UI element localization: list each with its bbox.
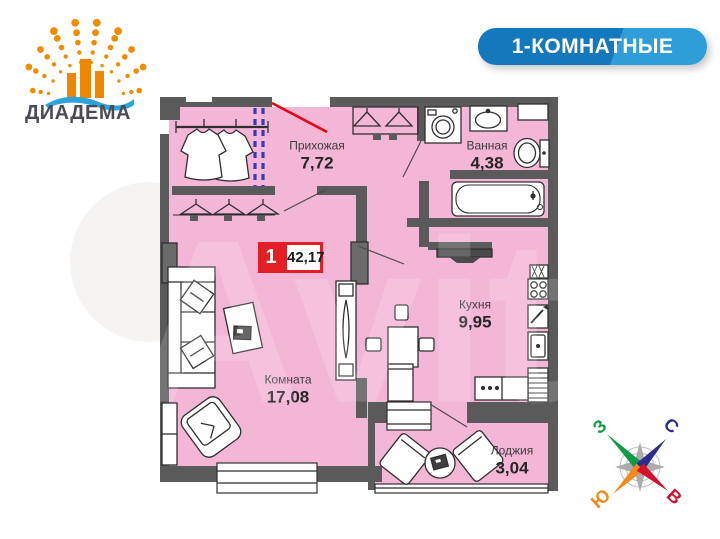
loggia-table-icon bbox=[425, 448, 455, 478]
room-window-icon bbox=[217, 463, 317, 493]
bath-sink-icon bbox=[470, 106, 507, 131]
total-area-chip: 42,17 bbox=[284, 242, 323, 273]
toilet-icon bbox=[514, 139, 549, 168]
kitchen-sink-icon bbox=[528, 332, 548, 360]
rooms-count-chip: 1 bbox=[258, 242, 284, 273]
loggia-glazing-icon bbox=[375, 484, 548, 493]
cutting-board-icon bbox=[528, 305, 548, 328]
logo-brand-text: ДИАДЕМА bbox=[24, 102, 132, 125]
sofa-icon bbox=[168, 267, 215, 388]
fridge-icon bbox=[388, 364, 413, 401]
stove-icon bbox=[528, 279, 548, 299]
listing-flyer: ДИАДЕМА 1-КОМНАТНЫЕ 1 42,17 Прихожая 7,7… bbox=[0, 0, 720, 539]
kitchen-window-icon bbox=[387, 402, 431, 430]
compass-rose-icon bbox=[607, 434, 668, 494]
radiator-icon bbox=[528, 368, 548, 402]
logo-buildings-icon bbox=[67, 59, 104, 98]
shelf-icon bbox=[518, 104, 548, 120]
wardrobe-icon bbox=[336, 281, 356, 380]
apartment-type-badge: 1-КОМНАТНЫЕ bbox=[478, 28, 707, 65]
logo-graphic-icon bbox=[26, 19, 147, 111]
kitchen-counter-icon bbox=[475, 377, 528, 400]
bathtub-icon bbox=[452, 182, 544, 216]
floor-plan-graphic bbox=[0, 0, 720, 539]
washing-machine-icon bbox=[425, 107, 461, 143]
vent-shaft-icon bbox=[530, 265, 548, 278]
